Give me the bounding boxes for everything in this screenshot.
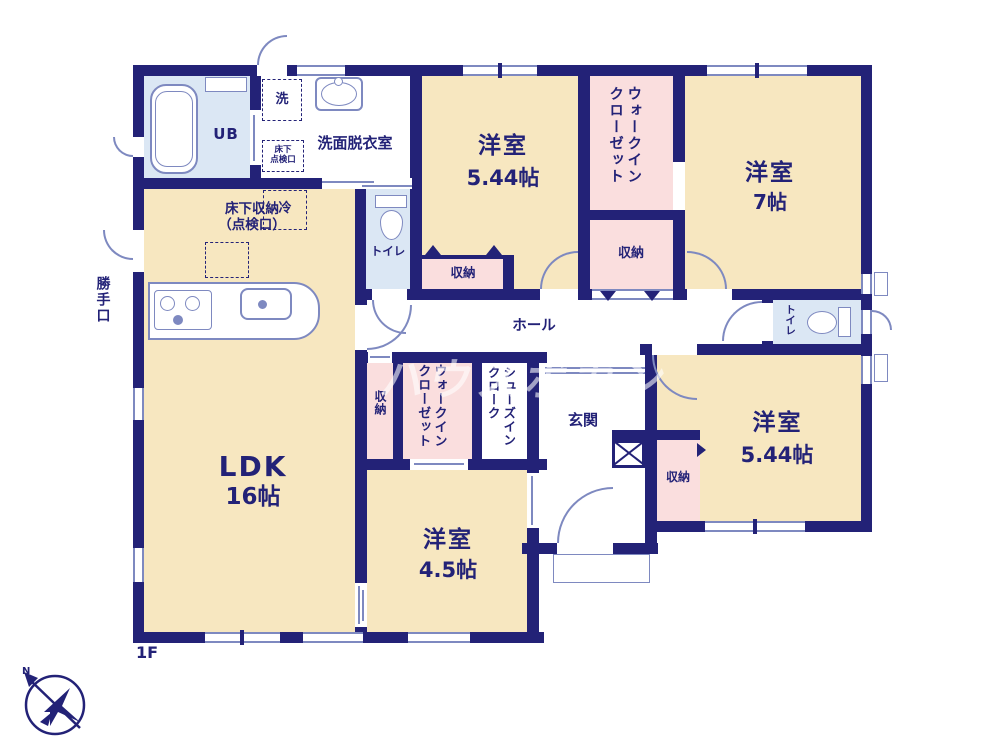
bedroom-bottom-door: [527, 473, 539, 528]
folding-door-chevron: [697, 443, 706, 457]
room-ldk: [144, 189, 355, 632]
sliding-door-leaf: [362, 590, 364, 621]
bath-shelf-icon: [205, 77, 247, 92]
wall-storage-stub: [503, 255, 514, 289]
back-door-swing: [103, 230, 133, 260]
bedroom-right-top-name: 洋室: [715, 160, 825, 187]
entrance-porch: [553, 554, 650, 583]
bedroom-top-door-opening: [540, 289, 578, 300]
unit-bath-label: UB: [198, 126, 254, 144]
bedroom-top-name: 洋室: [443, 133, 563, 160]
wic-top-line2: クローゼット: [606, 86, 624, 216]
window: [861, 310, 872, 334]
entrance-label: 玄関: [552, 412, 614, 430]
window: [303, 632, 363, 643]
toilet-top-label: トイレ: [364, 245, 412, 259]
sink-tap-icon: [258, 300, 267, 309]
toilet-bowl-icon: [807, 311, 837, 334]
floor-storage-line1: 床下収納: [192, 202, 312, 218]
washroom-label: 洗面脱衣室: [300, 135, 410, 153]
window-mullion: [240, 630, 244, 645]
bedroom-right-name: 洋室: [720, 410, 835, 437]
floor-hatch-label: 床下 点検口: [262, 145, 304, 165]
back-door-label: 勝手口: [93, 276, 111, 348]
window-shutter: [874, 354, 888, 382]
bedroom-right-top-door-opening: [687, 289, 732, 300]
floor-hatch-line2: 点検口: [262, 155, 304, 165]
wall-right: [861, 65, 872, 532]
sliding-door-leaf: [414, 463, 464, 465]
wic-opening: [673, 162, 685, 210]
washer-label: 洗: [262, 92, 302, 107]
floor-plan: UB 洗面脱衣室 洗 床下 点検口 冷 床下収納 （点検口） トイレ 洋室 5.…: [0, 0, 1000, 750]
window: [297, 65, 345, 76]
door-opening: [257, 65, 287, 76]
hall-label: ホール: [503, 318, 565, 335]
stove-burner-icon: [160, 296, 175, 311]
wall-bedroom-top-right: [578, 65, 590, 300]
washbasin-tap-icon: [334, 77, 343, 86]
stove-icon: [154, 290, 212, 330]
stove-burner-icon: [173, 315, 183, 325]
ldk-size: 16帖: [193, 484, 313, 511]
bedroom-bottom-name: 洋室: [388, 527, 508, 554]
floor-storage-space: [205, 242, 249, 278]
toilet-right-label: トイレ: [783, 304, 796, 344]
floor-label: 1F: [136, 644, 178, 663]
sliding-door-leaf: [362, 185, 412, 187]
window: [133, 388, 144, 420]
window-swing: [113, 137, 133, 157]
floor-storage-line2: （点検口）: [192, 218, 312, 234]
wall-storage-top-edge: [422, 255, 514, 259]
front-door-swing: [557, 487, 613, 543]
sliding-door-leaf: [322, 181, 374, 183]
window: [133, 548, 144, 582]
window: [408, 632, 470, 643]
folding-door-chevron: [644, 291, 660, 301]
floor-hatch-line1: 床下: [262, 145, 304, 155]
window-shutter: [874, 272, 888, 296]
toilet-tank-icon: [375, 195, 407, 208]
folding-door-chevron: [425, 245, 441, 255]
sliding-door-leaf: [531, 476, 533, 525]
bedroom-bottom-size: 4.5帖: [388, 558, 508, 583]
front-door-opening: [557, 543, 613, 554]
bedroom-top-size: 5.44帖: [443, 166, 563, 191]
walkin-closet-top-label: ウォークイン クローゼット: [606, 86, 642, 216]
bath-window-opening: [133, 137, 144, 157]
washroom-sliding-door: [322, 178, 412, 189]
compass-north-label: N: [22, 666, 30, 677]
door-swing: [722, 301, 762, 341]
window: [861, 356, 872, 384]
window: [861, 274, 872, 294]
folding-door-chevron: [600, 291, 616, 301]
window-mullion: [753, 519, 757, 534]
storage-entrance-label: 収納: [650, 470, 706, 484]
folding-door-chevron: [486, 245, 502, 255]
window-mullion: [755, 63, 759, 78]
storage-top-label: 収納: [602, 246, 660, 261]
stove-burner-icon: [185, 296, 200, 311]
wic-top-line1: ウォークイン: [624, 86, 642, 216]
window-swing: [872, 310, 892, 330]
bedroom-right-top-size: 7帖: [715, 191, 825, 215]
back-door-opening: [133, 230, 144, 272]
watermark: ハウスボカン: [376, 344, 675, 408]
ldk-name: LDK: [193, 450, 313, 483]
sliding-door-leaf: [358, 586, 360, 624]
floor-storage-label: 床下収納 （点検口）: [192, 202, 312, 234]
toilet-tank-icon: [838, 307, 851, 337]
toilet-right-door-opening: [762, 303, 773, 341]
door-swing: [257, 35, 287, 65]
bathtub-inner-icon: [155, 91, 193, 167]
storage-under-bedroom-top-label: 収納: [430, 266, 496, 281]
ldk-door-opening: [355, 305, 367, 350]
toilet-door-opening: [372, 289, 407, 300]
ldk-bedroom-sliding-door: [355, 583, 367, 627]
window-mullion: [498, 63, 502, 78]
bedroom-right-size: 5.44帖: [712, 443, 842, 468]
